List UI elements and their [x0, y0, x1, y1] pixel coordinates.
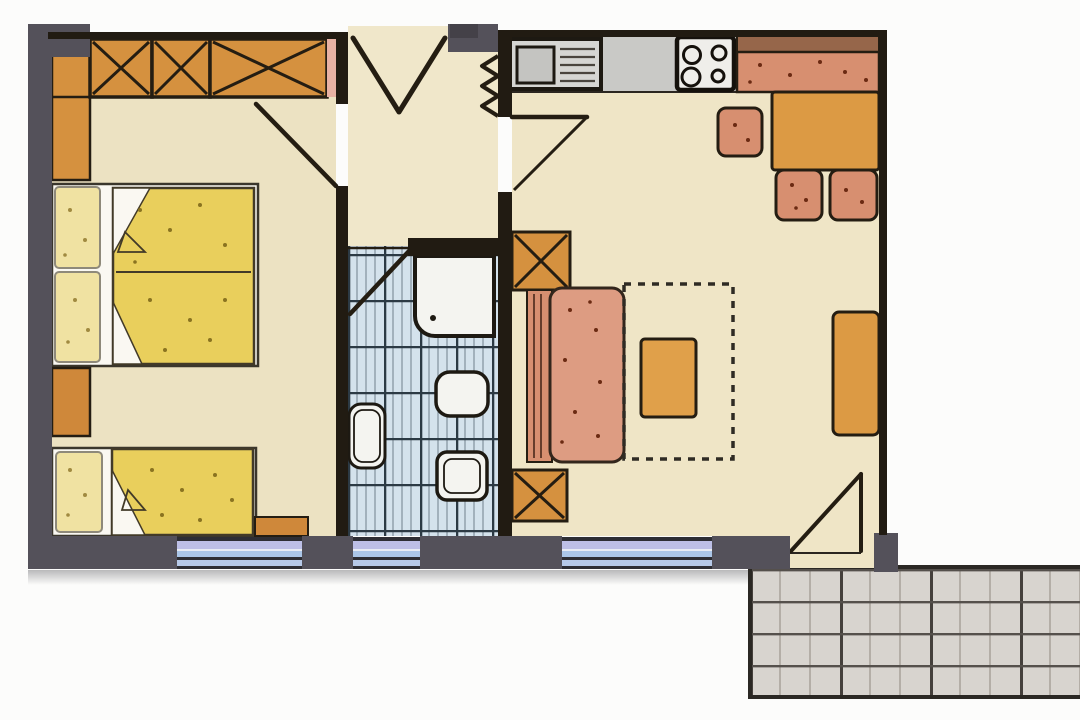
sideboard [833, 312, 879, 435]
bedside-table [255, 517, 308, 536]
terrace [750, 567, 1080, 697]
wall-bedroom-hall-lower [336, 186, 348, 536]
chair [776, 170, 822, 220]
shower [415, 256, 494, 336]
wall-hall-bathroom [408, 238, 498, 256]
side-closet [52, 39, 90, 180]
floor-plan-canvas [0, 0, 1080, 720]
wardrobe [90, 39, 327, 97]
wall-right [879, 30, 887, 535]
sink-basin [517, 47, 554, 83]
sofa [527, 288, 624, 462]
pillow [56, 452, 102, 532]
wall-unit-bottom [512, 470, 567, 521]
bathroom-window [353, 537, 420, 569]
double-bed [52, 184, 258, 366]
wall-hall-living-upper [498, 30, 512, 117]
pillow [55, 187, 100, 268]
sofa-seat [550, 288, 624, 462]
nightstand [52, 368, 90, 436]
outer-wall-bottom-4 [712, 536, 790, 569]
pillow [55, 272, 100, 362]
living-room-window [562, 537, 712, 569]
toilet [437, 452, 487, 500]
coffee-table [641, 339, 696, 417]
wall-bedroom-hall-upper [336, 32, 348, 104]
outer-wall-top-left-corner [52, 24, 90, 57]
bottom-shadow [28, 570, 748, 585]
outer-wall-bottom-2 [302, 536, 353, 569]
bidet [349, 404, 385, 468]
bedroom-window [177, 537, 302, 569]
entrance-wall-block-dark [450, 24, 478, 38]
wall-top-living [498, 30, 884, 37]
washbasin [436, 372, 488, 416]
chair [830, 170, 877, 220]
outer-wall-bottom-right-corner [874, 533, 898, 572]
terrace-tiles [750, 567, 1080, 697]
stove [677, 37, 734, 90]
kitchen-sink [509, 39, 601, 89]
chair [718, 108, 762, 156]
floor-plan [0, 0, 1080, 720]
wall-cap-pink [327, 39, 336, 97]
outer-wall-bottom-3 [420, 536, 562, 569]
shower-drain [430, 315, 436, 321]
wall-hall-living-lower [498, 192, 512, 536]
corner-bench [737, 35, 879, 92]
single-bed [52, 448, 256, 536]
wall-unit-top [512, 232, 570, 290]
hall-floor [348, 26, 498, 248]
wall-top-bedroom [48, 32, 336, 39]
dining-table [772, 92, 879, 170]
outer-wall-bottom-1 [28, 536, 177, 569]
scan-shadows [28, 570, 748, 585]
sofa-back [527, 290, 552, 462]
outer-wall-left [28, 24, 52, 569]
